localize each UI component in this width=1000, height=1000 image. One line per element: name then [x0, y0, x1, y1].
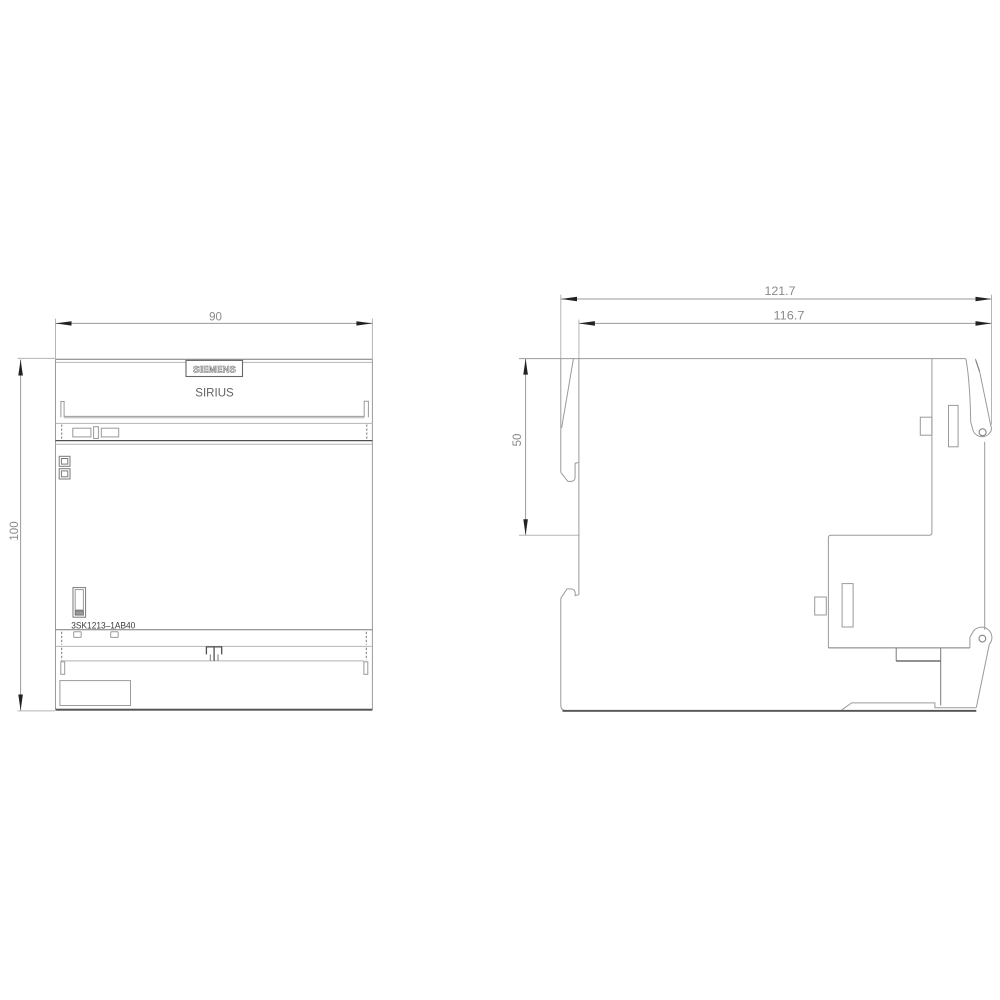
svg-text:SIEMENS: SIEMENS: [193, 364, 236, 375]
svg-text:SIRIUS: SIRIUS: [195, 385, 234, 399]
svg-text:90: 90: [209, 312, 222, 324]
svg-text:116.7: 116.7: [774, 310, 805, 322]
svg-text:121.7: 121.7: [765, 286, 796, 298]
svg-text:50: 50: [512, 434, 524, 447]
svg-text:100: 100: [9, 521, 21, 540]
